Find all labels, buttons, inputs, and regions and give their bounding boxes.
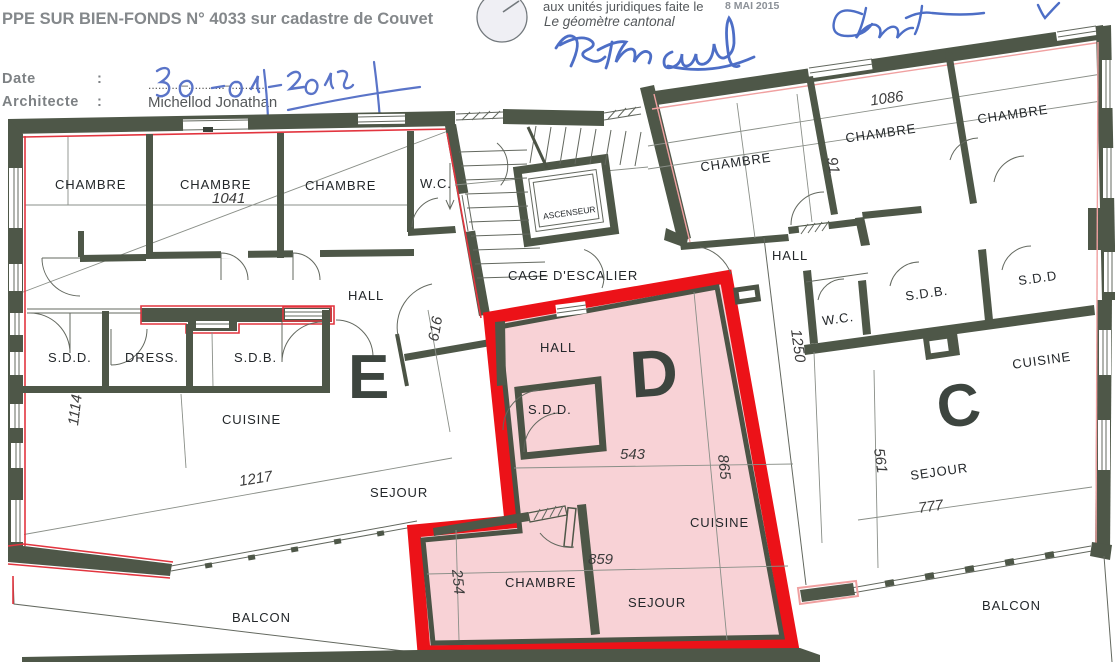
svg-text:PPE SUR BIEN-FONDS N° 4033 sur: PPE SUR BIEN-FONDS N° 4033 sur cadastre … [2, 10, 434, 28]
svg-text:SEJOUR: SEJOUR [370, 485, 428, 500]
svg-text:561: 561 [870, 447, 890, 474]
svg-text:Le géomètre cantonal: Le géomètre cantonal [544, 14, 676, 29]
svg-text:CHAMBRE: CHAMBRE [55, 177, 126, 192]
svg-text:HALL: HALL [772, 248, 808, 263]
svg-text:W.C.: W.C. [420, 176, 452, 191]
svg-text:S.D.B.: S.D.B. [234, 350, 277, 365]
svg-text:BALCON: BALCON [982, 598, 1041, 613]
svg-text:CUISINE: CUISINE [690, 515, 749, 530]
svg-text::: : [97, 94, 102, 110]
svg-text:S.D.D.: S.D.D. [528, 402, 572, 417]
svg-text:Michellod Jonathan: Michellod Jonathan [148, 94, 277, 111]
svg-text:Date: Date [2, 71, 36, 87]
svg-text:HALL: HALL [348, 288, 384, 303]
svg-text:D: D [628, 335, 681, 412]
svg-text:S.D.D.: S.D.D. [48, 350, 92, 365]
svg-text:91: 91 [823, 156, 843, 175]
svg-text:E: E [348, 343, 389, 412]
svg-text:CHAMBRE: CHAMBRE [305, 178, 376, 193]
svg-text:..........–...........–.......: ..........–...........–.......... [148, 78, 265, 92]
svg-text:HALL: HALL [540, 340, 576, 355]
svg-text:DRESS.: DRESS. [125, 350, 179, 365]
svg-text:859: 859 [588, 551, 614, 568]
svg-text:777: 777 [917, 497, 945, 517]
svg-text:BALCON: BALCON [232, 610, 291, 625]
svg-text:8 MAI 2015: 8 MAI 2015 [725, 0, 779, 12]
svg-text:543: 543 [620, 446, 646, 463]
svg-text:254: 254 [448, 568, 468, 596]
svg-text:865: 865 [714, 454, 734, 481]
svg-text:SEJOUR: SEJOUR [628, 595, 686, 610]
svg-text:aux unités juridiques faite le: aux unités juridiques faite le [543, 0, 703, 14]
svg-text::: : [97, 71, 102, 87]
svg-text:1041: 1041 [212, 190, 245, 207]
svg-text:CHAMBRE: CHAMBRE [505, 575, 576, 590]
svg-text:Architecte: Architecte [2, 94, 79, 110]
svg-text:CAGE D'ESCALIER: CAGE D'ESCALIER [508, 268, 638, 283]
svg-text:CUISINE: CUISINE [222, 412, 281, 427]
svg-text:C: C [932, 369, 984, 441]
